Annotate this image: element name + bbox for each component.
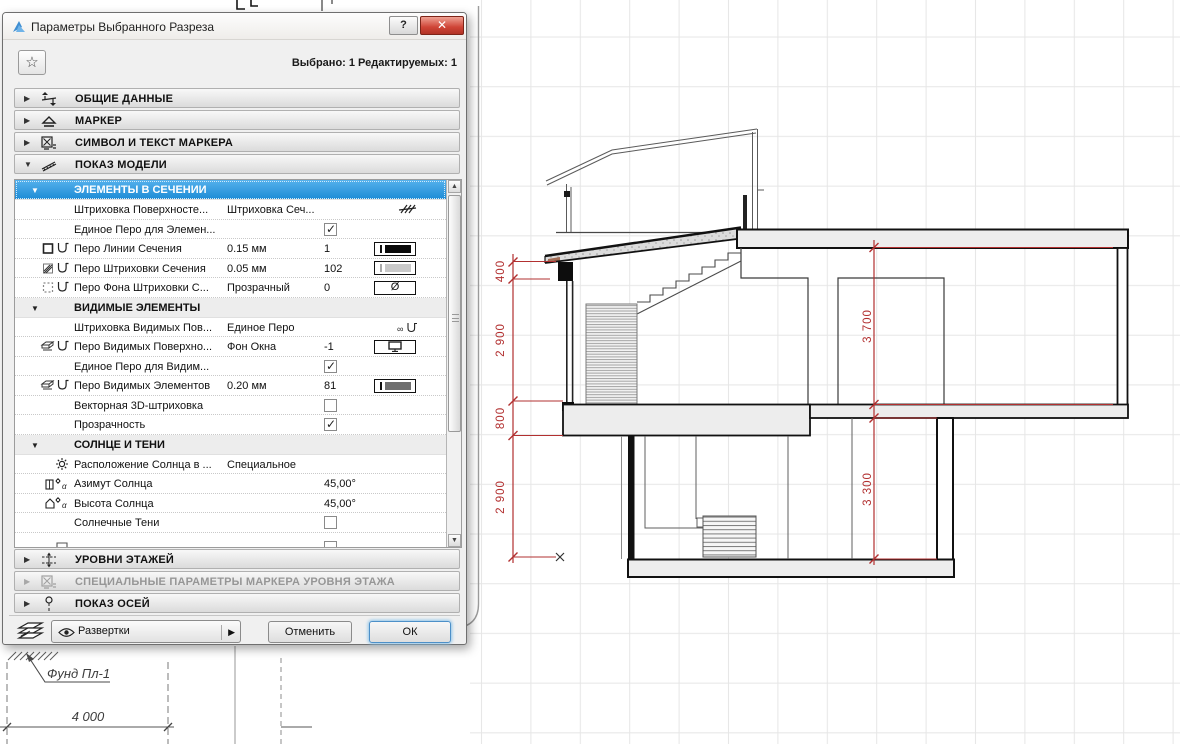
param-row-uniform-pen-visible[interactable]: Единое Перо для Видим...	[15, 357, 446, 377]
dim-left-800: 800	[495, 407, 507, 429]
section-bar-special-story-marker: ▶ СПЕЦИАЛЬНЫЕ ПАРАМЕТРЫ МАРКЕРА УРОВНЯ Э…	[14, 571, 460, 591]
section-label: УРОВНИ ЭТАЖЕЙ	[75, 554, 174, 566]
section-label: ОБЩИЕ ДАННЫЕ	[75, 93, 173, 105]
fill-pen-icon	[42, 262, 55, 275]
collapse-arrow-icon: ▼	[24, 160, 32, 169]
param-row-visible-surface-pen[interactable]: Перо Видимых Поверхно... Фон Окна -1	[15, 337, 446, 357]
lower-right-wall	[937, 418, 953, 560]
model-display-icon	[41, 157, 57, 173]
checkbox[interactable]	[324, 223, 337, 236]
param-value[interactable]: Единое Перо	[227, 322, 295, 334]
param-label: Прозрачность	[74, 419, 145, 431]
param-row-uniform-pen-cut[interactable]: Единое Перо для Элемен...	[15, 220, 446, 240]
section-bar-axes-display[interactable]: ▶ ПОКАЗ ОСЕЙ	[14, 593, 460, 613]
background-pen-icon	[42, 281, 55, 294]
section-bar-story-levels[interactable]: ▶ УРОВНИ ЭТАЖЕЙ	[14, 549, 460, 569]
cancel-button[interactable]: Отменить	[268, 621, 352, 643]
param-label: Азимут Солнца	[74, 478, 153, 490]
param-row-clipped[interactable]	[15, 533, 446, 548]
sun-altitude-icon: α	[45, 496, 69, 510]
collapse-arrow-icon: ▼	[31, 186, 39, 195]
param-row-cut-line-pen[interactable]: Перо Линии Сечения 0.15 мм 1	[15, 239, 446, 259]
pen-glyph-icon	[57, 281, 69, 294]
dialog-title: Параметры Выбранного Разреза	[31, 20, 214, 34]
param-row-visible-elements-pen[interactable]: Перо Видимых Элементов 0.20 мм 81	[15, 376, 446, 396]
param-label: Перо Фона Штриховки С...	[74, 282, 209, 294]
roof-edge-beam	[558, 262, 573, 281]
pen-glyph-icon	[57, 242, 69, 255]
section-settings-dialog: Параметры Выбранного Разреза ? ✕ ☆ Выбра…	[2, 12, 467, 645]
dialog-titlebar[interactable]: Параметры Выбранного Разреза ? ✕	[3, 13, 466, 40]
param-row-cut-fill-background-pen[interactable]: Перо Фона Штриховки С... Прозрачный 0 Ø	[15, 278, 446, 298]
dim-left-2900-upper: 2 900	[495, 323, 507, 357]
scroll-up-icon[interactable]: ▲	[448, 180, 461, 193]
collapse-arrow-icon: ▼	[31, 304, 39, 313]
bottom-dimension-label: 4 000	[72, 709, 105, 724]
expand-arrow-icon: ▶	[24, 555, 30, 564]
param-label: Перо Штриховки Сечения	[74, 263, 206, 275]
hatch-icon	[395, 201, 419, 218]
param-label: Солнечные Тени	[74, 517, 159, 529]
flat-roof-slab	[737, 230, 1128, 249]
param-row-cut-fill-pen[interactable]: Перо Штриховки Сечения 0.05 мм 102	[15, 259, 446, 279]
general-data-icon	[41, 91, 57, 107]
close-button[interactable]: ✕	[420, 16, 464, 35]
story-levels-icon	[41, 552, 57, 568]
param-row-sun-altitude[interactable]: α Высота Солнца 45,00°	[15, 494, 446, 514]
pen-number[interactable]: -1	[324, 341, 334, 353]
group-header-sun-and-shadows[interactable]: ▼ СОЛНЦЕ И ТЕНИ	[15, 435, 446, 455]
section-label: ПОКАЗ МОДЕЛИ	[75, 159, 167, 171]
param-row-cut-surface-fill[interactable]: Штриховка Поверхносте... Штриховка Сеч..…	[15, 200, 446, 220]
upper-right-wall	[1118, 248, 1128, 406]
group-title: ЭЛЕМЕНТЫ В СЕЧЕНИИ	[74, 184, 207, 196]
checkbox[interactable]	[324, 399, 337, 412]
layers-stack-icon[interactable]	[16, 620, 46, 642]
param-value[interactable]: 0.20 мм	[227, 380, 267, 392]
dim-right-3700: 3 700	[862, 309, 874, 343]
foundation-label: Фунд Пл-1	[47, 666, 110, 681]
star-icon: ☆	[25, 54, 38, 71]
help-button[interactable]: ?	[389, 16, 418, 35]
scroll-down-icon[interactable]: ▼	[448, 534, 461, 547]
archicad-logo-icon	[11, 19, 27, 35]
close-icon: ✕	[437, 18, 447, 32]
param-label: Расположение Солнца в ...	[74, 459, 212, 471]
param-value[interactable]: Фон Окна	[227, 341, 276, 353]
svg-text:∞: ∞	[397, 324, 403, 334]
section-label: СПЕЦИАЛЬНЫЕ ПАРАМЕТРЫ МАРКЕРА УРОВНЯ ЭТА…	[75, 576, 395, 588]
selection-info: Выбрано: 1 Редактируемых: 1	[292, 57, 457, 69]
null-pen-icon[interactable]: Ø	[374, 281, 416, 295]
expand-arrow-icon: ▶	[24, 94, 30, 103]
sun-icon	[55, 457, 69, 471]
param-value[interactable]: Специальное	[227, 459, 296, 471]
expand-arrow-icon: ▶	[24, 138, 30, 147]
dim-left-400: 400	[495, 260, 507, 282]
pen-number[interactable]: 102	[324, 263, 342, 275]
svg-text:α: α	[62, 482, 67, 491]
param-label: Штриховка Поверхносте...	[74, 204, 208, 216]
help-icon: ?	[400, 19, 407, 31]
param-label: Высота Солнца	[74, 498, 154, 510]
expand-arrow-icon: ▶	[24, 599, 30, 608]
favorites-button[interactable]: ☆	[18, 50, 46, 75]
section-label: СИМВОЛ И ТЕКСТ МАРКЕРА	[75, 137, 233, 149]
clipped-icon	[55, 535, 69, 547]
param-label: Единое Перо для Видим...	[74, 361, 209, 373]
floor-slab-left	[563, 405, 810, 436]
footer-separator	[9, 615, 460, 616]
section-bar-model-display[interactable]: ▼ ПОКАЗ МОДЕЛИ	[14, 154, 460, 174]
param-row-vectorial-3d-hatching[interactable]: Векторная 3D-штриховка	[15, 396, 446, 416]
section-bar-symbol-text[interactable]: ▶ СИМВОЛ И ТЕКСТ МАРКЕРА	[14, 132, 460, 152]
stair-balustrade	[586, 304, 637, 404]
checkbox[interactable]	[324, 541, 337, 548]
axes-icon	[41, 596, 57, 612]
eye-icon	[58, 627, 75, 638]
scrollbar-grip	[452, 314, 459, 322]
window-background-pen-swatch[interactable]	[374, 340, 416, 354]
param-label: Перо Видимых Элементов	[74, 380, 210, 392]
pen-color-swatch[interactable]	[374, 379, 416, 393]
checkbox[interactable]	[324, 516, 337, 529]
checkbox[interactable]	[324, 360, 337, 373]
svg-text:α: α	[62, 501, 67, 510]
ok-label: ОК	[403, 626, 418, 638]
uniform-pen-icon: ∞	[395, 319, 419, 336]
checkbox[interactable]	[324, 418, 337, 431]
archicad-workspace: 400 2 900 800 2 900 3 700 3 300 Фунд Пл-…	[0, 0, 1180, 744]
pen-number[interactable]: 0	[324, 282, 330, 294]
marker-icon	[41, 113, 57, 129]
angle-value[interactable]: 45,00°	[324, 478, 356, 490]
expand-arrow-icon: ▶	[24, 577, 30, 586]
line-pen-icon	[42, 242, 55, 255]
group-header-visible-elements[interactable]: ▼ ВИДИМЫЕ ЭЛЕМЕНТЫ	[15, 298, 446, 318]
pen-number[interactable]: 81	[324, 380, 336, 392]
param-value[interactable]: Прозрачный	[227, 282, 290, 294]
pen-glyph-icon	[57, 340, 69, 353]
section-label: МАРКЕР	[75, 115, 122, 127]
pen-number[interactable]: 1	[324, 243, 330, 255]
collapse-arrow-icon: ▼	[31, 441, 39, 450]
section-bar-general-data[interactable]: ▶ ОБЩИЕ ДАННЫЕ	[14, 88, 460, 108]
group-header-cut-elements[interactable]: ▼ ЭЛЕМЕНТЫ В СЕЧЕНИИ	[15, 180, 446, 200]
section-label: ПОКАЗ ОСЕЙ	[75, 598, 150, 610]
special-marker-icon	[41, 574, 57, 590]
param-label: Перо Видимых Поверхно...	[74, 341, 212, 353]
surface-pen-icon	[40, 379, 55, 392]
expand-arrow-icon: ▶	[24, 116, 30, 125]
sun-azimuth-icon: α	[45, 477, 69, 491]
scrollbar-thumb[interactable]	[448, 195, 461, 432]
param-label: Штриховка Видимых Пов...	[74, 322, 212, 334]
dim-left-2900-lower: 2 900	[495, 480, 507, 514]
param-label: Векторная 3D-штриховка	[74, 400, 203, 412]
group-title: СОЛНЦЕ И ТЕНИ	[74, 439, 165, 451]
lower-left-wall	[628, 436, 635, 560]
pen-glyph-icon	[57, 262, 69, 275]
flyout-arrow-icon: ▶	[221, 625, 235, 640]
param-label: Перо Линии Сечения	[74, 243, 182, 255]
param-row-sun-shadows[interactable]: Солнечные Тени	[15, 513, 446, 533]
param-label: Единое Перо для Элемен...	[74, 224, 215, 236]
pen-glyph-icon	[57, 379, 69, 392]
flyout-selector-button[interactable]: Развертки ▶	[51, 620, 241, 643]
symbol-text-icon	[41, 135, 57, 151]
param-value[interactable]: 0.15 мм	[227, 243, 267, 255]
param-row-transparency[interactable]: Прозрачность	[15, 415, 446, 435]
param-row-visible-surface-fill[interactable]: Штриховка Видимых Пов... Единое Перо ∞	[15, 318, 446, 338]
pen-color-swatch[interactable]	[374, 242, 416, 256]
surface-pen-icon	[40, 340, 55, 353]
angle-value[interactable]: 45,00°	[324, 498, 356, 510]
flyout-label: Развертки	[78, 625, 130, 637]
param-value[interactable]: 0.05 мм	[227, 263, 267, 275]
ok-button[interactable]: ОК	[369, 621, 451, 643]
drawing-grid	[470, 0, 1180, 744]
panel-scrollbar[interactable]: ▲ ▼	[446, 180, 461, 547]
cancel-label: Отменить	[285, 626, 335, 638]
model-display-panel: ▼ ЭЛЕМЕНТЫ В СЕЧЕНИИ Штриховка Поверхнос…	[14, 179, 462, 548]
floor-slab-right	[810, 405, 1128, 419]
param-value[interactable]: Штриховка Сеч...	[227, 204, 315, 216]
group-title: ВИДИМЫЕ ЭЛЕМЕНТЫ	[74, 302, 200, 314]
param-row-sun-azimuth[interactable]: α Азимут Солнца 45,00°	[15, 474, 446, 494]
stairs-lower	[703, 516, 756, 557]
monitor-icon	[388, 341, 402, 352]
pen-color-swatch[interactable]	[374, 261, 416, 275]
section-bar-marker[interactable]: ▶ МАРКЕР	[14, 110, 460, 130]
dim-right-3300: 3 300	[862, 472, 874, 506]
param-row-sun-position[interactable]: Расположение Солнца в ... Специальное	[15, 455, 446, 475]
ground-slab	[628, 560, 954, 578]
